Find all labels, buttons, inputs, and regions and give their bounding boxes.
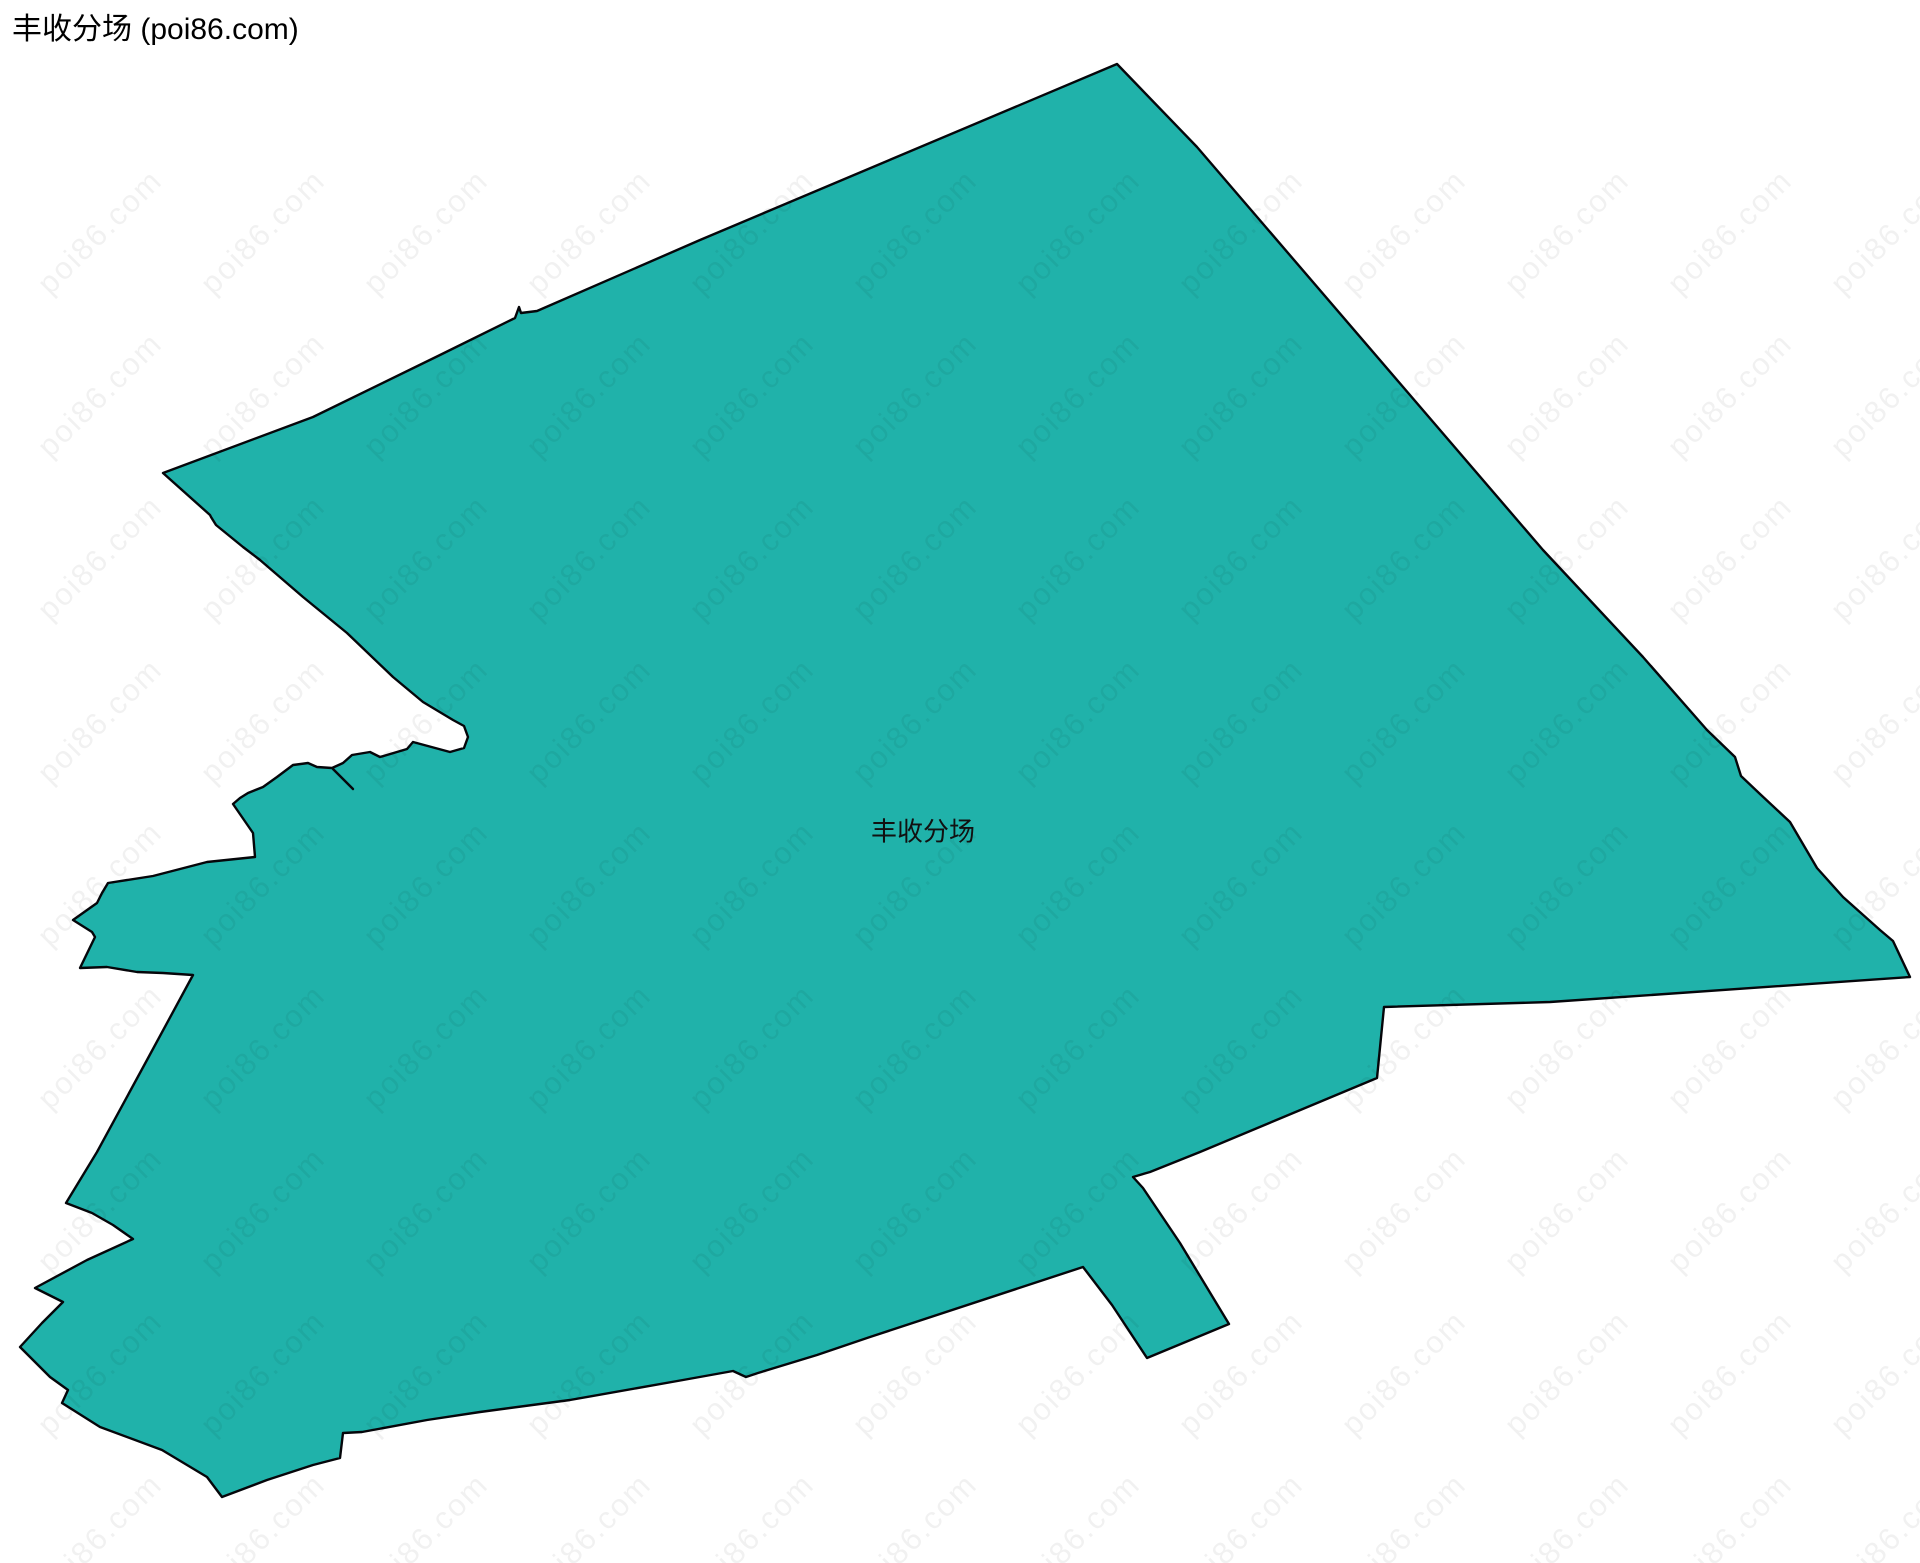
map-page: poi86.compoi86.compoi86.compoi86.compoi8… [0,0,1920,1563]
region-polygon [20,64,1910,1497]
page-title: 丰收分场 (poi86.com) [12,12,299,48]
region-label: 丰收分场 [871,812,975,849]
map-canvas [0,0,1920,1563]
